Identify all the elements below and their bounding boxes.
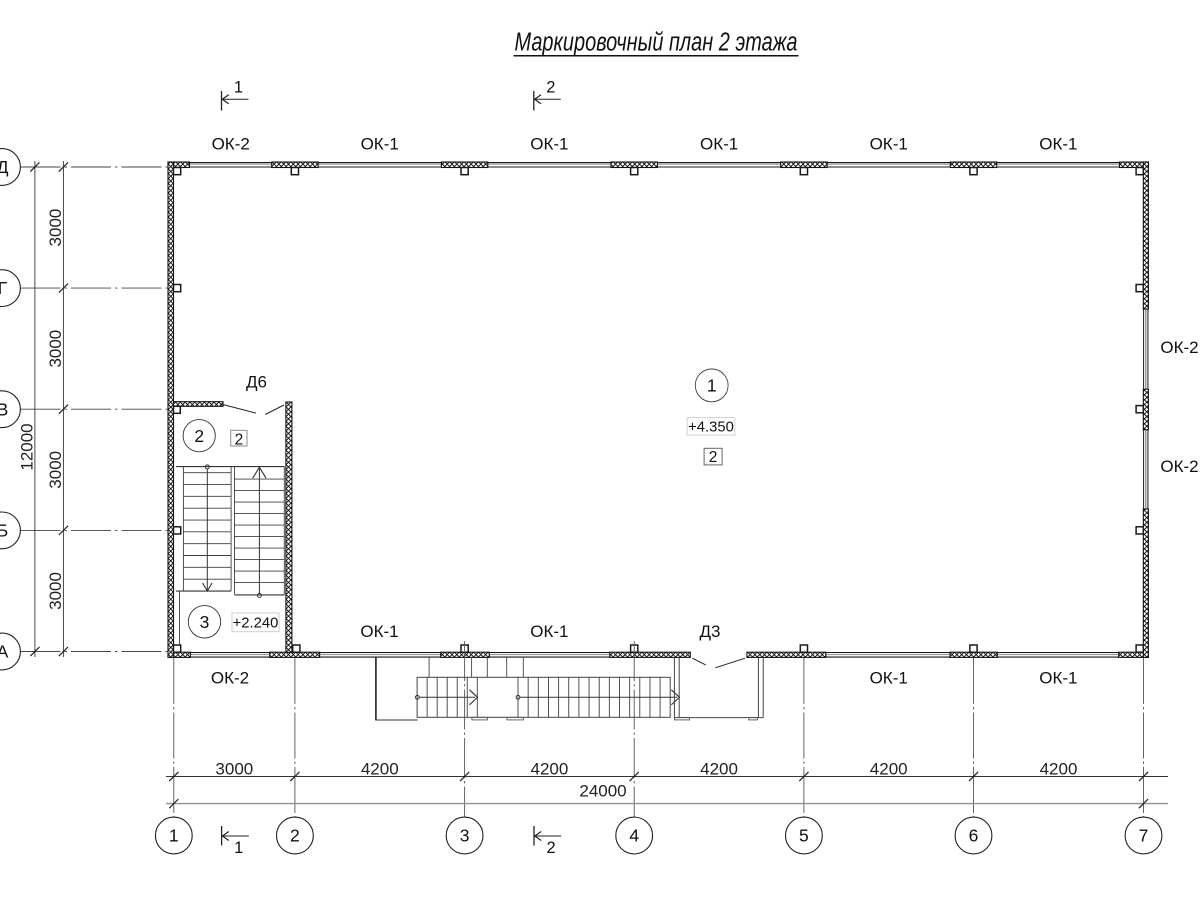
svg-text:ОК-1: ОК-1	[361, 135, 399, 154]
svg-text:12000: 12000	[18, 423, 37, 470]
svg-text:ОК-2: ОК-2	[211, 669, 249, 688]
svg-text:2: 2	[194, 426, 204, 446]
svg-text:5: 5	[799, 826, 809, 846]
svg-text:2: 2	[546, 78, 555, 96]
svg-text:Д3: Д3	[700, 622, 721, 641]
svg-text:4: 4	[629, 826, 639, 846]
svg-text:ОК-2: ОК-2	[212, 135, 250, 154]
svg-text:+2.240: +2.240	[233, 616, 279, 632]
svg-text:2: 2	[547, 839, 556, 857]
svg-text:3000: 3000	[46, 451, 65, 489]
svg-text:ОК-2: ОК-2	[1160, 457, 1198, 476]
svg-text:+4.350: +4.350	[688, 419, 734, 435]
svg-text:Д: Д	[0, 157, 9, 177]
svg-text:3: 3	[460, 826, 470, 846]
svg-text:А: А	[0, 642, 9, 662]
svg-text:3000: 3000	[46, 209, 65, 247]
svg-text:Г: Г	[0, 278, 8, 298]
svg-text:ОК-1: ОК-1	[530, 622, 568, 641]
svg-text:1: 1	[707, 376, 717, 396]
svg-text:ОК-1: ОК-1	[1039, 669, 1077, 688]
svg-text:2: 2	[290, 826, 300, 846]
svg-text:4200: 4200	[361, 759, 399, 778]
svg-text:1: 1	[234, 839, 243, 857]
svg-text:ОК-1: ОК-1	[530, 135, 568, 154]
svg-text:2: 2	[235, 431, 244, 448]
svg-text:ОК-1: ОК-1	[870, 669, 908, 688]
svg-text:4200: 4200	[700, 759, 738, 778]
svg-text:Д6: Д6	[246, 372, 267, 391]
svg-text:3000: 3000	[46, 572, 65, 610]
svg-text:ОК-1: ОК-1	[870, 135, 908, 154]
svg-text:Маркировочный план 2 этажа: Маркировочный план 2 этажа	[515, 29, 798, 57]
svg-text:ОК-1: ОК-1	[1039, 135, 1077, 154]
svg-text:ОК-1: ОК-1	[360, 622, 398, 641]
svg-text:1: 1	[169, 826, 179, 846]
svg-text:4200: 4200	[1040, 759, 1078, 778]
svg-text:6: 6	[969, 826, 979, 846]
svg-text:ОК-1: ОК-1	[700, 135, 738, 154]
svg-text:3000: 3000	[215, 759, 253, 778]
svg-text:ОК-2: ОК-2	[1160, 338, 1198, 357]
svg-text:2: 2	[709, 449, 718, 466]
svg-text:4200: 4200	[870, 759, 908, 778]
svg-text:1: 1	[234, 78, 243, 96]
svg-text:4200: 4200	[530, 759, 568, 778]
svg-text:24000: 24000	[579, 782, 626, 801]
svg-text:3: 3	[200, 612, 210, 632]
svg-text:В: В	[0, 399, 8, 419]
svg-text:3000: 3000	[46, 330, 65, 368]
svg-text:7: 7	[1139, 826, 1149, 846]
svg-text:Б: Б	[0, 521, 8, 541]
